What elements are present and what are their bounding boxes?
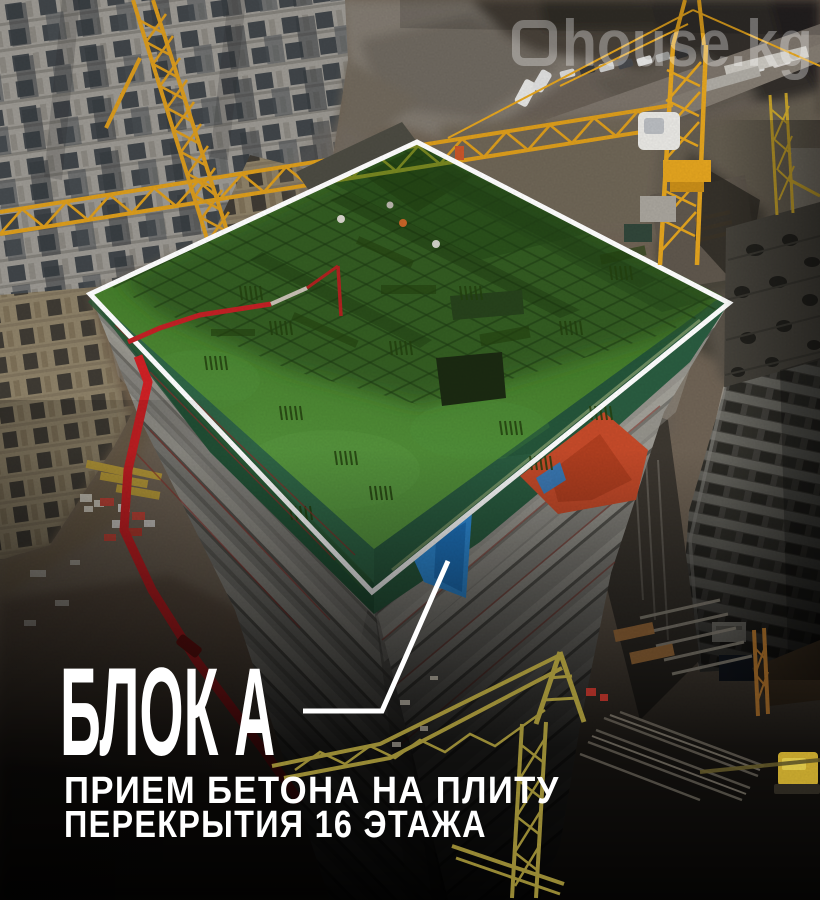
svg-text:house.kg: house.kg bbox=[562, 7, 813, 81]
svg-text:ПЕРЕКРЫТИЯ 16 ЭТАЖА: ПЕРЕКРЫТИЯ 16 ЭТАЖА bbox=[64, 804, 487, 846]
svg-text:БЛОК А: БЛОК А bbox=[60, 642, 275, 782]
